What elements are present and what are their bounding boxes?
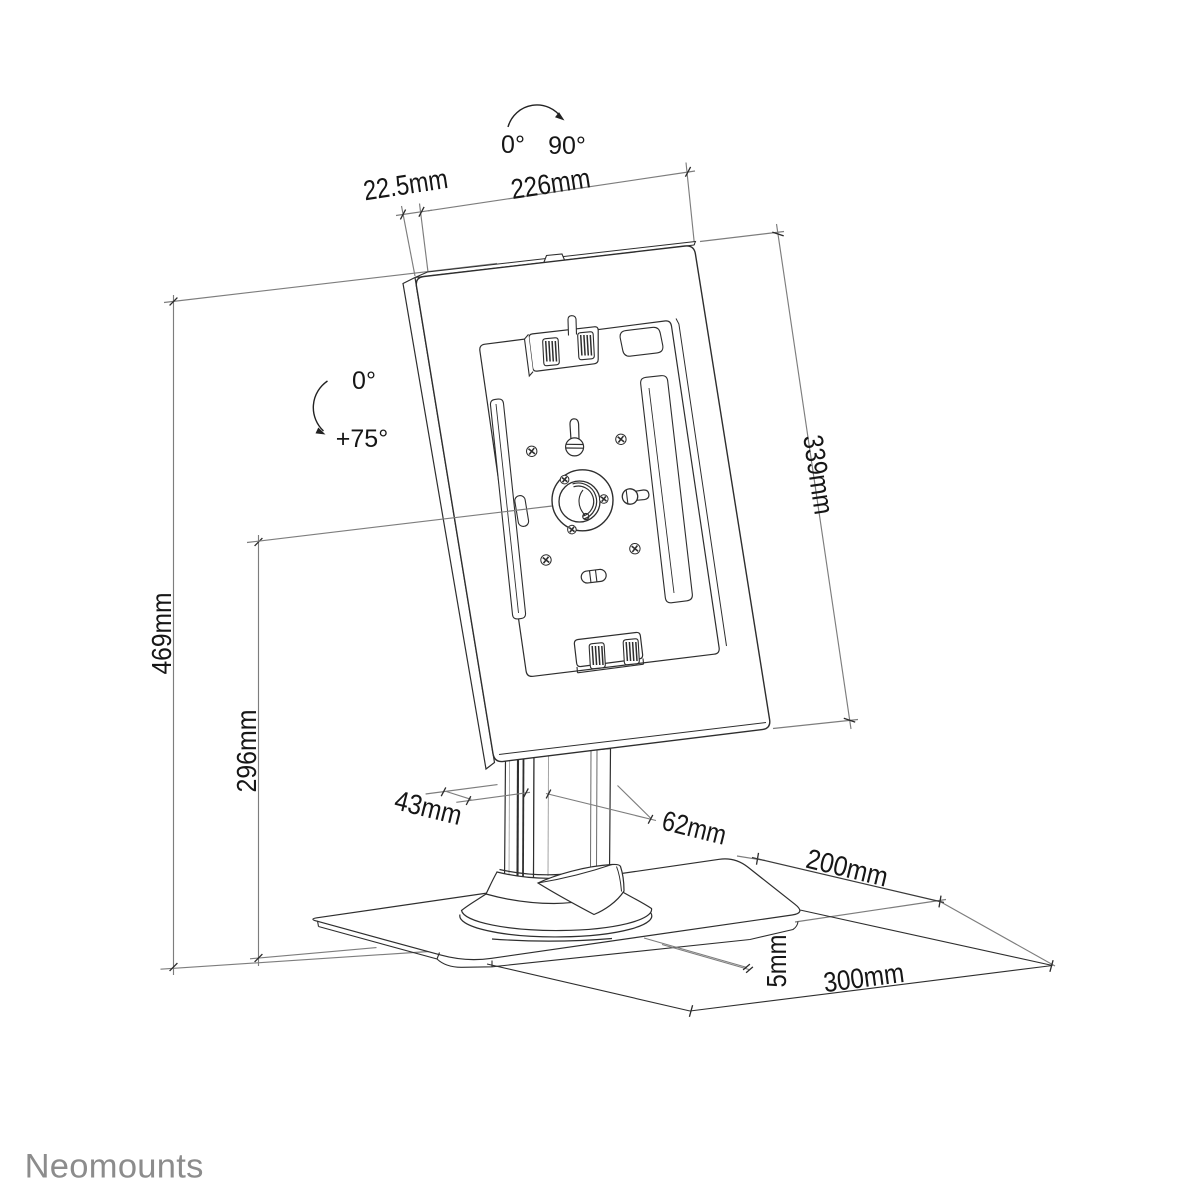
svg-text:469mm: 469mm	[146, 593, 177, 675]
svg-text:5mm: 5mm	[761, 935, 792, 988]
svg-text:90°: 90°	[548, 132, 586, 160]
svg-text:0°: 0°	[501, 131, 525, 159]
svg-text:296mm: 296mm	[231, 710, 262, 793]
svg-text:Neomounts: Neomounts	[25, 1148, 204, 1186]
svg-text:+75°: +75°	[336, 425, 388, 453]
svg-text:0°: 0°	[352, 367, 376, 395]
